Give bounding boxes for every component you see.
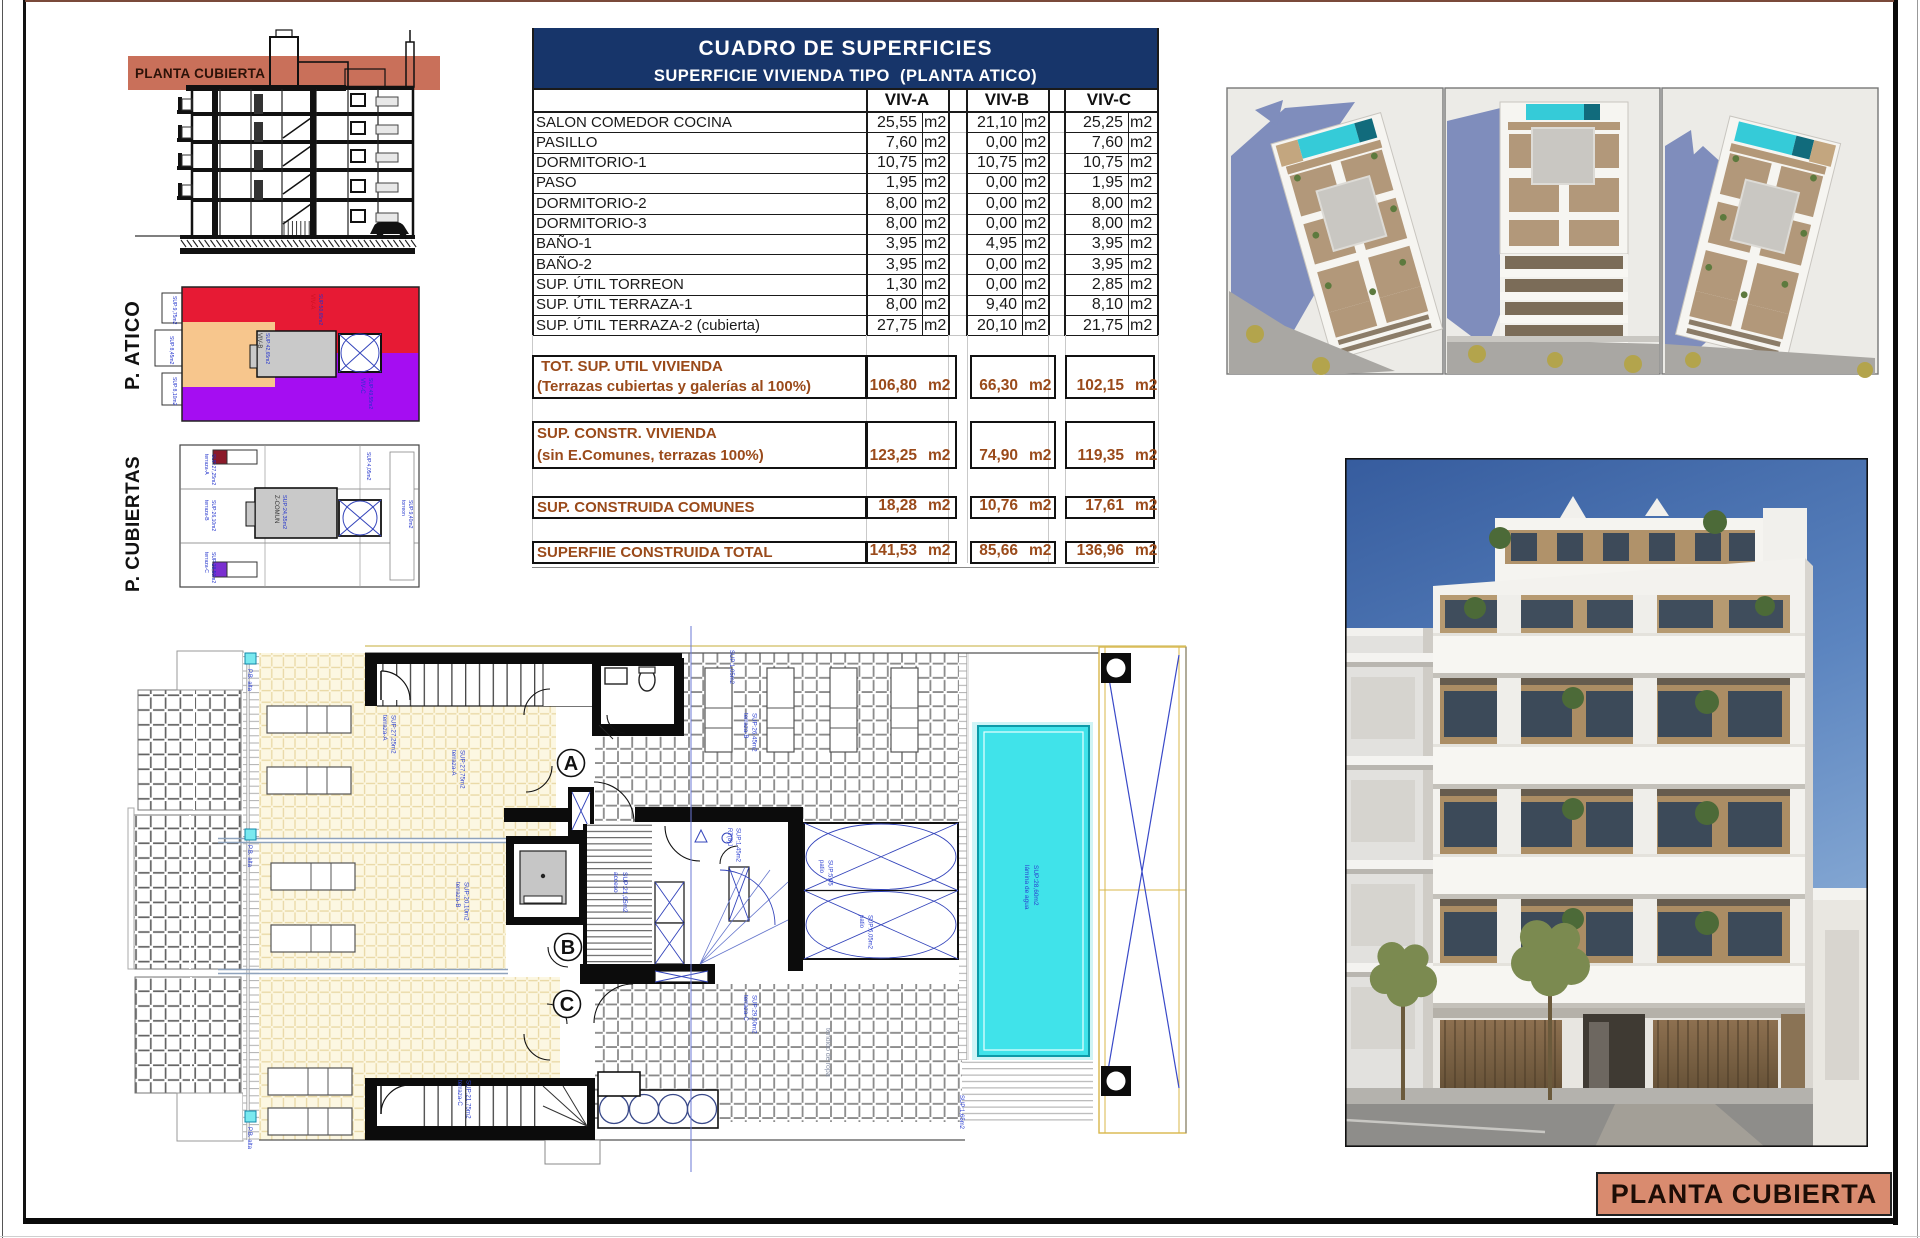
svg-text:SUP:6,05m2: SUP:6,05m2 bbox=[867, 915, 873, 950]
svg-text:SUP:28,60m2: SUP:28,60m2 bbox=[1032, 865, 1039, 906]
svg-text:SUP:42,65m2: SUP:42,65m2 bbox=[264, 333, 270, 364]
svg-text:Z-COMUN: Z-COMUN bbox=[273, 495, 279, 523]
svg-text:B: B bbox=[561, 937, 575, 959]
svg-text:patio: patio bbox=[858, 915, 864, 929]
svg-text:tendido de ropa: tendido de ropa bbox=[824, 1028, 831, 1077]
svg-text:terraza-A: terraza-A bbox=[450, 750, 457, 776]
svg-text:P.B. alta: P.B. alta bbox=[246, 845, 252, 868]
svg-text:RT(8)J: RT(8)J bbox=[726, 828, 732, 846]
svg-text:P. CUBIERTAS: P. CUBIERTAS bbox=[123, 456, 144, 592]
svg-text:SUP:26,45m2: SUP:26,45m2 bbox=[751, 713, 758, 752]
svg-text:acceso: acceso bbox=[612, 872, 619, 893]
svg-text:SUP:49,55m2: SUP:49,55m2 bbox=[367, 378, 373, 409]
svg-text:SUP:24,35m2: SUP:24,35m2 bbox=[281, 495, 287, 529]
svg-text:torreon: torreon bbox=[400, 500, 406, 516]
svg-text:VIV-B: VIV-B bbox=[256, 333, 262, 348]
svg-text:SUP:28,50m2: SUP:28,50m2 bbox=[210, 552, 216, 583]
svg-text:C: C bbox=[560, 994, 574, 1016]
svg-text:terraza-A: terraza-A bbox=[203, 454, 209, 475]
svg-text:SUP:1,65m2: SUP:1,65m2 bbox=[958, 1095, 964, 1130]
svg-text:terraza-B: terraza-B bbox=[203, 500, 209, 521]
svg-text:VIV-A: VIV-A bbox=[309, 294, 315, 309]
svg-text:terraza-C: terraza-C bbox=[456, 1080, 463, 1106]
svg-text:P.B. alta: P.B. alta bbox=[246, 1127, 252, 1150]
svg-text:terraza-B: terraza-B bbox=[742, 713, 749, 738]
svg-text:SUP:27,25m2: SUP:27,25m2 bbox=[210, 454, 216, 485]
svg-text:P.B. alta: P.B. alta bbox=[246, 669, 252, 692]
svg-text:PLANTA CUBIERTA: PLANTA CUBIERTA bbox=[135, 66, 265, 81]
svg-text:terraza-B: terraza-B bbox=[454, 882, 461, 907]
svg-text:A: A bbox=[564, 753, 578, 775]
svg-text:patio: patio bbox=[818, 860, 824, 874]
svg-text:SUP:1,05m2: SUP:1,05m2 bbox=[728, 650, 734, 685]
svg-text:SUP:8,10m2: SUP:8,10m2 bbox=[171, 377, 177, 406]
svg-text:SUP:1,45m2: SUP:1,45m2 bbox=[735, 828, 741, 863]
svg-text:SUP:29,50m2: SUP:29,50m2 bbox=[751, 995, 758, 1034]
svg-text:terraza-C: terraza-C bbox=[203, 552, 209, 573]
svg-text:P. ATICO: P. ATICO bbox=[122, 300, 144, 390]
svg-text:SUP:27,75m2: SUP:27,75m2 bbox=[459, 750, 466, 789]
svg-text:SUP:5,05: SUP:5,05 bbox=[827, 860, 833, 886]
svg-text:SUP:20,10m2: SUP:20,10m2 bbox=[463, 882, 470, 921]
svg-text:SUP:27,25m2: SUP:27,25m2 bbox=[390, 715, 397, 754]
svg-text:terraza-A: terraza-A bbox=[381, 715, 388, 741]
svg-text:lámina de agua: lámina de agua bbox=[1023, 865, 1030, 910]
svg-text:terraza-C: terraza-C bbox=[742, 995, 749, 1021]
svg-text:SUP:8,45m2: SUP:8,45m2 bbox=[168, 336, 174, 365]
svg-text:SUP:50,65m2: SUP:50,65m2 bbox=[317, 294, 323, 325]
svg-text:SUP:4,05m2: SUP:4,05m2 bbox=[365, 452, 371, 481]
svg-text:SUP:26,10m2: SUP:26,10m2 bbox=[210, 500, 216, 531]
svg-text:VIV-C: VIV-C bbox=[359, 378, 365, 394]
svg-text:SUP:9,75m2: SUP:9,75m2 bbox=[171, 296, 177, 325]
svg-text:SUP:9,40m2: SUP:9,40m2 bbox=[407, 500, 413, 529]
svg-text:SUP:21,75m2: SUP:21,75m2 bbox=[465, 1080, 472, 1119]
svg-text:SUP:21,95m2: SUP:21,95m2 bbox=[621, 872, 628, 913]
